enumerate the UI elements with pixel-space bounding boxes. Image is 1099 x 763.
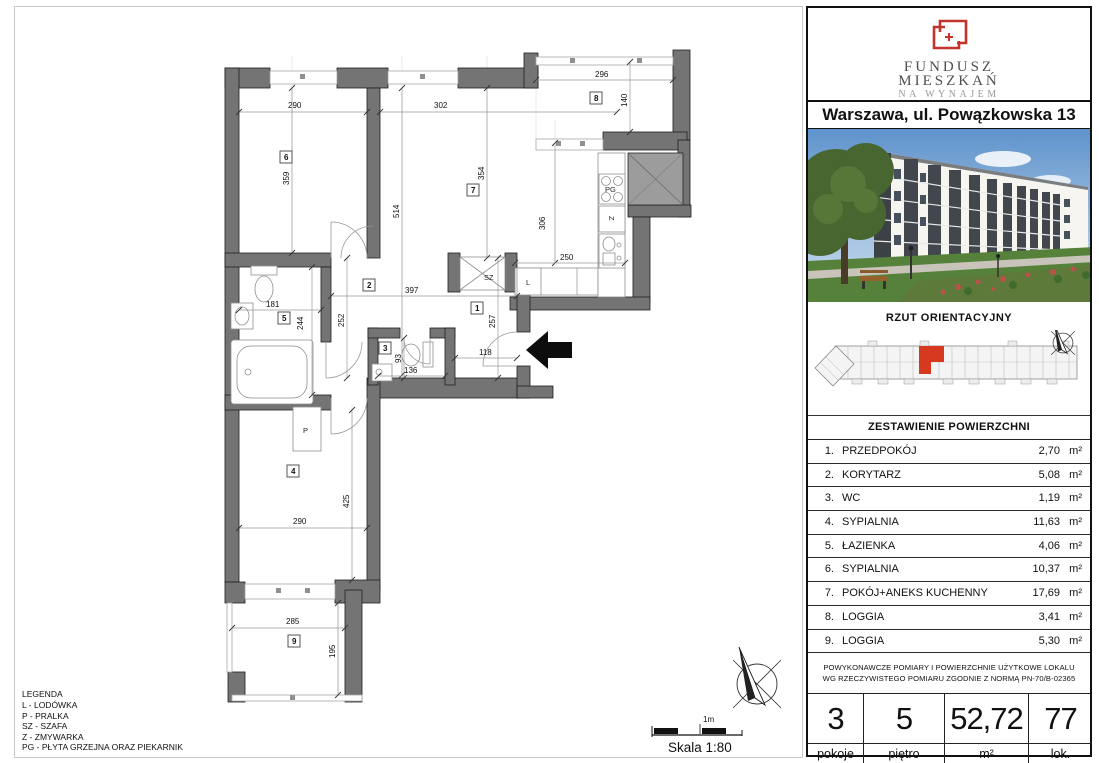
svg-text:9: 9: [292, 637, 297, 646]
svg-text:195: 195: [328, 644, 337, 658]
table-row: 2.KORYTARZ5,08m²: [808, 464, 1090, 488]
svg-text:3: 3: [383, 344, 388, 353]
svg-text:285: 285: [286, 617, 300, 626]
stat-label: pokoje: [808, 744, 863, 763]
svg-text:4: 4: [291, 467, 296, 476]
brand-name-line2: MIESZKAŃ: [808, 74, 1090, 88]
table-row: 4.SYPIALNIA11,63m²: [808, 511, 1090, 535]
table-row: 3.WC1,19m²: [808, 487, 1090, 511]
svg-text:514: 514: [392, 204, 401, 218]
stat-value: 52,72: [945, 694, 1028, 744]
entrance-arrow-icon: [526, 331, 572, 369]
legend: LEGENDA L - LODÓWKA P - PRALKA SZ - SZAF…: [22, 689, 183, 752]
svg-text:354: 354: [477, 166, 486, 180]
table-row: 9.LOGGIA5,30m²: [808, 630, 1090, 654]
table-row: 5.ŁAZIENKA4,06m²: [808, 535, 1090, 559]
area-table: ZESTAWIENIE POWIERZCHNI 1.PRZEDPOKÓJ2,70…: [808, 416, 1090, 653]
info-panel: FUNDUSZ MIESZKAŃ NA WYNAJEM Warszawa, ul…: [806, 6, 1092, 757]
stat-value: 77: [1029, 694, 1092, 744]
washer-label: P: [303, 426, 308, 435]
legend-item: Z - ZMYWARKA: [22, 732, 84, 742]
shaft: [628, 153, 683, 205]
svg-text:257: 257: [488, 314, 497, 328]
stat-label: lok.: [1029, 744, 1092, 763]
compass-icon: [733, 647, 781, 708]
floor-plan: P SZ L: [0, 0, 806, 763]
building-photo-art: [808, 129, 1090, 302]
table-row: 8.LOGGIA3,41m²: [808, 606, 1090, 630]
stat-value: 3: [808, 694, 863, 744]
svg-text:5: 5: [282, 314, 287, 323]
svg-text:6: 6: [284, 153, 289, 162]
stat-label: m²: [945, 744, 1028, 763]
svg-text:1: 1: [475, 304, 480, 313]
svg-text:244: 244: [296, 316, 305, 330]
svg-text:140: 140: [620, 93, 629, 107]
hob-label: PG: [605, 185, 616, 194]
stat-rooms: 3 pokoje: [808, 694, 864, 763]
svg-text:306: 306: [538, 216, 547, 230]
svg-text:290: 290: [288, 101, 302, 110]
legend-item: L - LODÓWKA: [22, 700, 78, 710]
svg-text:425: 425: [342, 494, 351, 508]
legend-item: P - PRALKA: [22, 711, 69, 721]
table-row: 7.POKÓJ+ANEKS KUCHENNY17,69m²: [808, 582, 1090, 606]
svg-text:181: 181: [266, 300, 280, 309]
svg-text:290: 290: [293, 517, 307, 526]
wardrobe-label: SZ: [484, 273, 494, 282]
scale-bar: 1m Skala 1:80: [652, 715, 742, 755]
stat-value: 5: [864, 694, 944, 744]
fridge-label: L: [526, 278, 530, 287]
brand-header: FUNDUSZ MIESZKAŃ NA WYNAJEM: [808, 8, 1090, 100]
svg-text:302: 302: [434, 101, 448, 110]
address-text: Warszawa, ul. Powązkowska 13: [822, 105, 1076, 125]
svg-text:296: 296: [595, 70, 609, 79]
table-row: 6.SYPIALNIA10,37m²: [808, 558, 1090, 582]
svg-text:397: 397: [405, 286, 419, 295]
svg-text:252: 252: [337, 313, 346, 327]
area-table-title: ZESTAWIENIE POWIERZCHNI: [808, 416, 1090, 440]
legend-title: LEGENDA: [22, 689, 63, 699]
orientation-title: RZUT ORIENTACYJNY: [808, 302, 1090, 324]
stats-grid: 3 pokoje 5 piętro 52,72 m² 77 lok.: [808, 694, 1090, 763]
svg-text:2: 2: [367, 281, 372, 290]
svg-text:250: 250: [560, 253, 574, 262]
address-bar: Warszawa, ul. Powązkowska 13: [808, 100, 1090, 129]
svg-text:8: 8: [594, 94, 599, 103]
brand-logo-icon: [926, 16, 972, 58]
legend-item: SZ - SZAFA: [22, 721, 68, 731]
disclaimer: POWYKONAWCZE POMIARY I POWIERZCHNIE UŻYT…: [808, 653, 1090, 694]
brand-name-line1: FUNDUSZ: [808, 60, 1090, 74]
stat-unit-number: 77 lok.: [1029, 694, 1092, 763]
stat-area: 52,72 m²: [945, 694, 1029, 763]
svg-text:118: 118: [479, 348, 492, 357]
stat-floor: 5 piętro: [864, 694, 945, 763]
svg-text:359: 359: [282, 171, 291, 185]
scale-1m-label: 1m: [703, 715, 714, 724]
svg-text:136: 136: [404, 366, 418, 375]
room-numbers: 6 7 8 2 5 1 3 4 9: [278, 92, 602, 647]
svg-text:93: 93: [394, 354, 403, 363]
stat-label: piętro: [864, 744, 944, 763]
dishwasher-label: Z: [607, 216, 616, 221]
table-row: 1.PRZEDPOKÓJ2,70m²: [808, 440, 1090, 464]
disclaimer-text: POWYKONAWCZE POMIARY I POWIERZCHNIE UŻYT…: [808, 662, 1090, 685]
scale-label: Skala 1:80: [668, 740, 732, 755]
building-photo: [808, 129, 1090, 302]
orientation-section: RZUT ORIENTACYJNY: [808, 302, 1090, 416]
svg-text:7: 7: [471, 186, 476, 195]
legend-item: PG - PŁYTA GRZEJNA ORAZ PIEKARNIK: [22, 742, 183, 752]
floorplan-sheet: P SZ L: [0, 0, 1099, 763]
orientation-plan: [808, 330, 1092, 408]
